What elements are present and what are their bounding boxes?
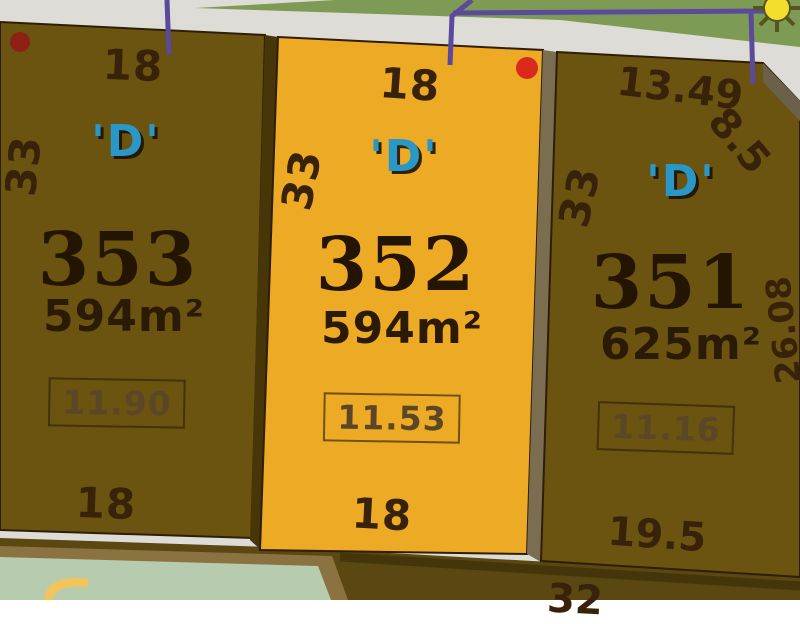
lot-352-side-dimension: 33 bbox=[276, 146, 329, 213]
lot-351-zone-label: 'D' bbox=[646, 160, 715, 204]
subdivision-plan-map: 18 33 'D' 353 594m² 11.90 18 18 33 'D' 3… bbox=[0, 0, 800, 600]
lot-353-side-dimension: 33 bbox=[0, 134, 48, 199]
lot-351-area: 625m² bbox=[600, 323, 762, 367]
utility-line-right-drop bbox=[751, 11, 753, 84]
lot-351-side-dimension: 33 bbox=[553, 163, 608, 231]
lot-353-bottom-dimension: 18 bbox=[75, 482, 137, 526]
lot-353-frontage: 11.90 bbox=[62, 386, 172, 421]
lot-352-frontage-box: 11.53 bbox=[323, 392, 461, 443]
lot-352-bottom-dimension: 18 bbox=[351, 492, 414, 537]
lot-352-top-dimension: 18 bbox=[378, 62, 441, 108]
lot-352-number: 352 bbox=[316, 228, 476, 302]
lot-351-frontage-box: 11.16 bbox=[596, 401, 735, 455]
survey-marker-dot-bright bbox=[516, 57, 538, 79]
lot-353-area: 594m² bbox=[43, 295, 205, 339]
adjacent-lot-top-dimension: 32 bbox=[546, 579, 604, 622]
lot-353-frontage-box: 11.90 bbox=[48, 377, 186, 428]
survey-marker-dot-dark bbox=[10, 32, 30, 52]
lot-351-depth-dimension: 26.08 bbox=[761, 275, 800, 386]
lot-353-top-dimension: 18 bbox=[102, 44, 164, 88]
lot-352-zone-label: 'D' bbox=[369, 135, 438, 179]
lot-353-number: 353 bbox=[38, 223, 198, 297]
utility-line-left bbox=[167, 0, 169, 55]
lot-351-number: 351 bbox=[591, 246, 751, 320]
lot-353-zone-label: 'D' bbox=[91, 120, 160, 164]
lot-351-bottom-dimension: 19.5 bbox=[606, 512, 707, 559]
lot-351-frontage: 11.16 bbox=[611, 410, 721, 447]
utility-line-top bbox=[453, 11, 765, 13]
lot-352-area: 594m² bbox=[321, 307, 483, 351]
lot-352-frontage: 11.53 bbox=[337, 401, 447, 436]
